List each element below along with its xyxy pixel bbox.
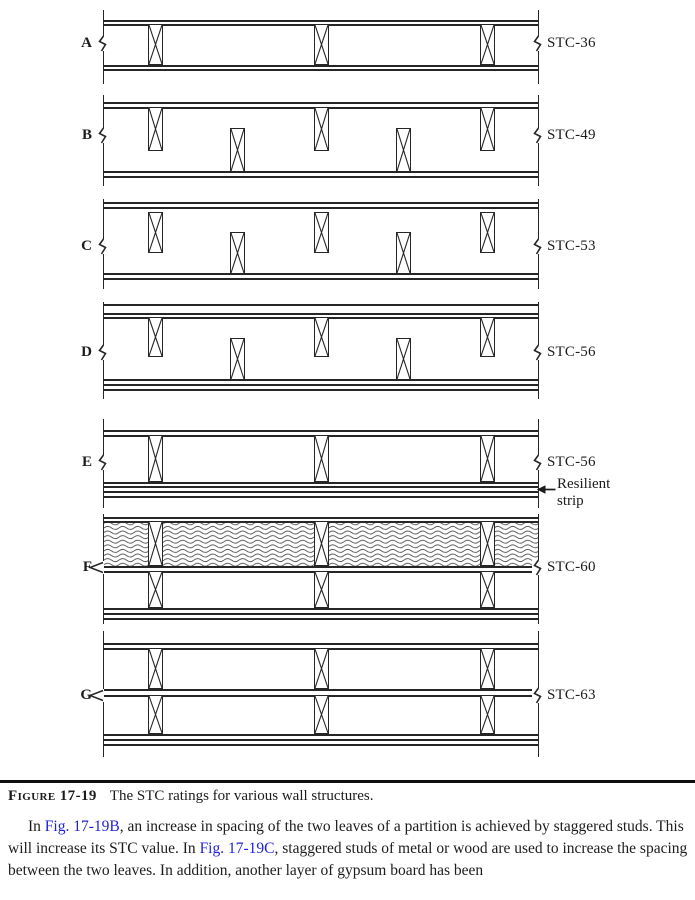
textbook-page: ASTC-36BSTC-49CSTC-53DSTC-56ESTC-56FSTC-… — [0, 0, 695, 900]
figure-17-19-diagram: ASTC-36BSTC-49CSTC-53DSTC-56ESTC-56FSTC-… — [0, 0, 695, 770]
wall-g-stud — [480, 695, 495, 734]
wall-a-panel-line — [104, 65, 540, 67]
wall-b-stud — [230, 128, 245, 172]
wall-e-break-squiggle-icon — [97, 454, 108, 471]
wall-e-panel-line — [104, 482, 540, 484]
wall-b-stud — [480, 107, 495, 151]
body-paragraph: In Fig. 17-19B, an increase in spacing o… — [8, 816, 692, 881]
wall-e-stud — [148, 435, 163, 482]
wall-d-stud — [148, 317, 163, 357]
wall-e-stud — [314, 435, 329, 482]
figure-link-17-19B[interactable]: Fig. 17-19B — [45, 818, 120, 835]
wall-f-panel-line — [104, 608, 540, 610]
wall-d-panel-line — [104, 389, 540, 391]
wall-f-panel-line — [104, 517, 540, 519]
wall-d-panel-line — [104, 379, 540, 381]
wall-e-stc-rating: STC-56 — [547, 453, 596, 471]
wall-b-panel-line — [104, 171, 540, 173]
wall-f-panel-line — [104, 566, 540, 568]
wall-g-panel-line — [104, 689, 540, 691]
wall-f-stud — [480, 571, 495, 608]
wall-c-right-break-squiggle-icon — [532, 238, 543, 255]
wall-c-stud — [230, 232, 245, 274]
wall-c-panel-line — [104, 273, 540, 275]
wall-a-label: A — [54, 34, 92, 52]
wall-e-panel-line — [104, 491, 540, 493]
wall-g-stud — [480, 648, 495, 689]
wall-b-panel-line — [104, 176, 540, 178]
wall-g-right-break-squiggle-icon — [532, 687, 543, 704]
wall-d-panel-line — [104, 384, 540, 386]
wall-f-panel-line — [104, 613, 540, 615]
wall-g-stud — [314, 648, 329, 689]
wall-a-stud — [314, 24, 329, 65]
resilient-arrow-icon — [536, 484, 556, 495]
wall-c-break-squiggle-icon — [97, 238, 108, 255]
wall-d-panel-line — [104, 313, 540, 315]
wall-f-stud — [148, 521, 163, 566]
wall-c-label: C — [54, 237, 92, 255]
wall-f-stud — [314, 571, 329, 608]
body-segment-1: In — [28, 818, 45, 835]
wall-b-stud — [314, 107, 329, 151]
wall-g-stud — [148, 648, 163, 689]
resilient-strip-label: Resilient strip — [557, 476, 610, 509]
wall-d-stc-rating: STC-56 — [547, 343, 596, 361]
wall-c-panel-line — [104, 202, 540, 204]
wall-c-stud — [148, 212, 163, 253]
annotation-line-1: Resilient — [557, 476, 610, 493]
wall-c-stud — [396, 232, 411, 274]
wall-a-break-squiggle-icon — [97, 35, 108, 52]
wall-e-panel-line — [104, 496, 540, 498]
wall-a-stud — [480, 24, 495, 65]
wall-a-right-break-squiggle-icon — [532, 35, 543, 52]
annotation-line-2: strip — [557, 493, 610, 510]
wall-c-panel-line — [104, 207, 540, 209]
wall-g-stud — [314, 695, 329, 734]
wall-f-stud — [148, 571, 163, 608]
wall-b-label: B — [54, 126, 92, 144]
wall-a-stc-rating: STC-36 — [547, 34, 596, 52]
wall-e-right-break-squiggle-icon — [532, 454, 543, 471]
wall-g-panel-line — [104, 643, 540, 645]
wall-e-label: E — [54, 453, 92, 471]
wall-f-label: F — [54, 558, 92, 576]
wall-g-stud — [148, 695, 163, 734]
wall-a-panel-line — [104, 20, 540, 22]
wall-e-panel-line — [104, 430, 540, 432]
wall-b-stc-rating: STC-49 — [547, 126, 596, 144]
wall-f-stud — [480, 521, 495, 566]
wall-c-stud — [480, 212, 495, 253]
caption-divider-rule — [0, 780, 695, 783]
wall-f-stud — [314, 521, 329, 566]
wall-d-right-break-squiggle-icon — [532, 344, 543, 361]
wall-g-panel-line — [104, 739, 540, 741]
wall-d-break-squiggle-icon — [97, 344, 108, 361]
wall-f-panel-line — [104, 618, 540, 620]
caption-label: Figure 17-19 — [8, 788, 97, 804]
wall-b-panel-line — [104, 102, 540, 104]
wall-c-panel-line — [104, 278, 540, 280]
wall-c-stud — [314, 212, 329, 253]
wall-d-stud — [230, 338, 245, 380]
wall-a-stud — [148, 24, 163, 65]
wall-d-panel-line — [104, 304, 540, 306]
wall-g-stc-rating: STC-63 — [547, 686, 596, 704]
wall-f-right-break-squiggle-icon — [532, 559, 543, 576]
wall-c-stc-rating: STC-53 — [547, 237, 596, 255]
figure-link-17-19C[interactable]: Fig. 17-19C — [200, 840, 275, 857]
wall-d-label: D — [54, 343, 92, 361]
wall-e-stud — [480, 435, 495, 482]
figure-caption: Figure 17-19The STC ratings for various … — [8, 788, 373, 805]
wall-g-label: G — [54, 686, 92, 704]
wall-g-panel-line — [104, 744, 540, 746]
wall-b-stud — [148, 107, 163, 151]
wall-g-panel-line — [104, 734, 540, 736]
wall-b-break-squiggle-icon — [97, 127, 108, 144]
caption-text: The STC ratings for various wall structu… — [110, 788, 374, 804]
wall-d-stud — [314, 317, 329, 357]
wall-f-stc-rating: STC-60 — [547, 558, 596, 576]
wall-e-panel-line — [104, 486, 540, 488]
wall-b-stud — [396, 128, 411, 172]
wall-d-stud — [396, 338, 411, 380]
wall-b-right-break-squiggle-icon — [532, 127, 543, 144]
wall-a-panel-line — [104, 69, 540, 71]
wall-d-stud — [480, 317, 495, 357]
